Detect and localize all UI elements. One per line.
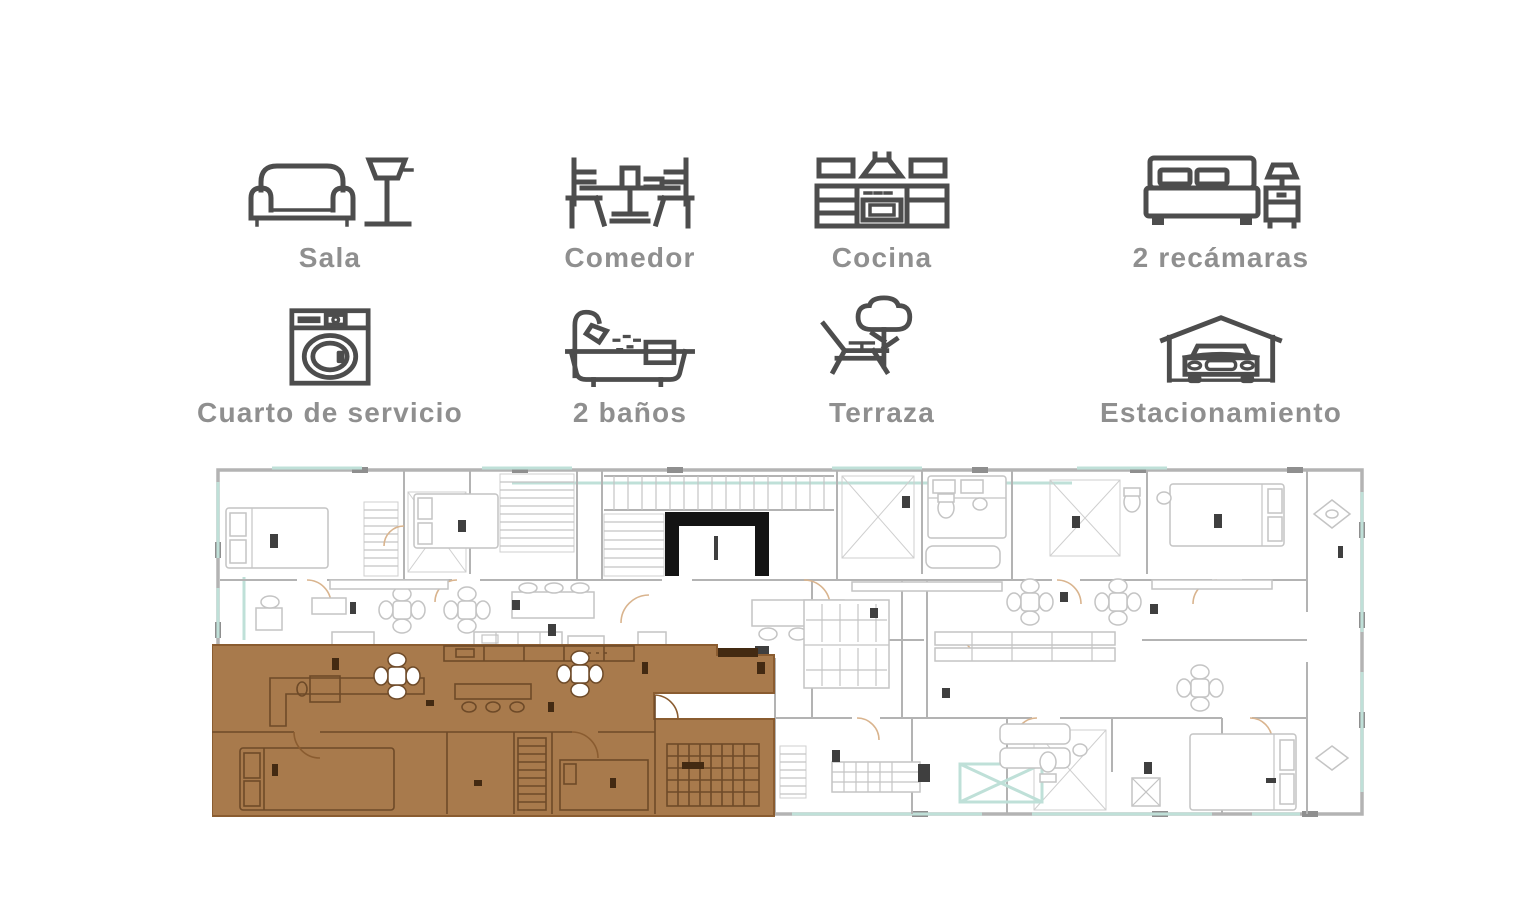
- amenity-cocina: Cocina: [702, 140, 1062, 274]
- amenity-label-estacionamiento: Estacionamiento: [1100, 397, 1342, 429]
- kitchen-cabinets-icon: [806, 150, 958, 232]
- amenity-label-banos: 2 baños: [573, 397, 687, 429]
- washing-machine-icon: [282, 305, 378, 387]
- terrace-tree-lounge-icon: [807, 295, 957, 387]
- bed-nightstand-icon: [1140, 152, 1302, 232]
- amenity-label-recamaras: 2 recámaras: [1133, 242, 1310, 274]
- amenity-estacionamiento: Estacionamiento: [1041, 295, 1401, 429]
- amenity-terraza: Terraza: [702, 295, 1062, 429]
- amenity-label-cuarto-servicio: Cuarto de servicio: [197, 397, 463, 429]
- amenity-label-cocina: Cocina: [832, 242, 933, 274]
- car-garage-icon: [1153, 309, 1289, 387]
- selected-unit: [212, 645, 774, 816]
- floor-plan: [212, 462, 1369, 820]
- page: Sala Comedor: [0, 0, 1523, 923]
- balcony-tables: [1314, 500, 1350, 770]
- amenity-label-sala: Sala: [299, 242, 361, 274]
- dining-set-icon: [554, 152, 706, 232]
- amenity-label-comedor: Comedor: [564, 242, 695, 274]
- sofa-lamp-icon: [245, 152, 415, 232]
- amenity-label-terraza: Terraza: [829, 397, 935, 429]
- amenity-recamaras: 2 recámaras: [1041, 140, 1401, 274]
- bathtub-shower-icon: [554, 301, 706, 387]
